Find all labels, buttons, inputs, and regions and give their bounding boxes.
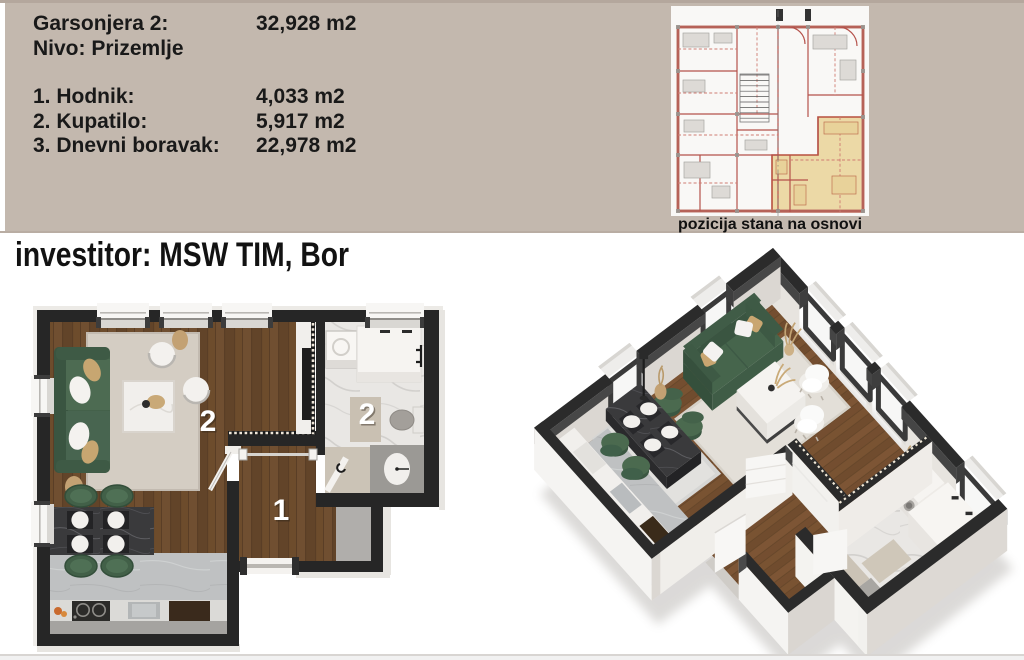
svg-text:2: 2 [359,398,376,431]
svg-text:2: 2 [200,405,217,438]
svg-text:1: 1 [273,494,290,527]
